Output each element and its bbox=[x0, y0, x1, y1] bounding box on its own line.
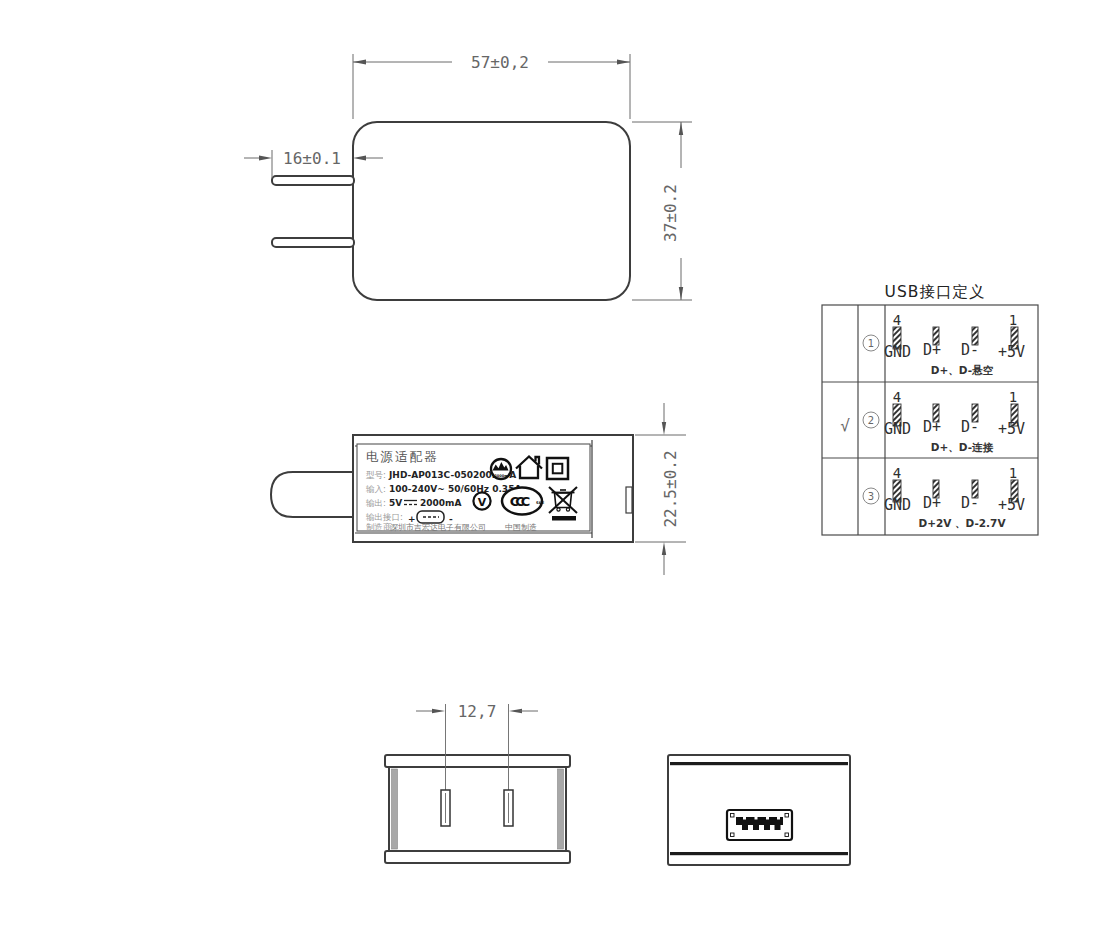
row3-pin1-number: 1 bbox=[1009, 465, 1017, 481]
label-output-key: 输出: bbox=[365, 498, 386, 508]
dim-side-height-value: 22.5±0.2 bbox=[661, 450, 680, 527]
usb-plug-icon bbox=[417, 511, 444, 523]
dim-height-value: 37±0.2 bbox=[661, 184, 680, 242]
usb-table-row-2: √ 2 4 1 GND D+ D- +5V D+、D-连接 bbox=[840, 389, 1025, 453]
row3-note: D+2V 、D-2.7V bbox=[918, 517, 1006, 529]
plug-face-left-wall bbox=[392, 769, 398, 849]
side-view: 电源适配器 型号: JHD-AP013C-050200BB-A 输入: 100-… bbox=[271, 403, 686, 575]
dimension-pin-spacing: 12,7 bbox=[416, 702, 538, 721]
rating-label: 电源适配器 型号: JHD-AP013C-050200BB-A 输入: 100-… bbox=[357, 444, 590, 532]
plug-face-top-band bbox=[385, 755, 570, 767]
row2-label-5v: +5V bbox=[998, 420, 1025, 438]
row2-label-dminus: D- bbox=[961, 418, 979, 436]
plug-prong-lower bbox=[272, 238, 354, 247]
row3-number: 3 bbox=[868, 491, 874, 502]
usb-table-row-1: 1 4 1 GND D+ D- +5V D+、D-悬空 bbox=[863, 312, 1025, 376]
usb-corner-notch bbox=[731, 814, 735, 818]
usb-contact-tab bbox=[775, 825, 781, 830]
plug-face-view: 12,7 bbox=[385, 702, 570, 863]
row2-note: D+、D-连接 bbox=[931, 441, 994, 453]
ccc-mark-icon: CCC S&E bbox=[502, 488, 545, 515]
row2-pin4-number: 4 bbox=[893, 389, 901, 405]
row3-pin4-number: 4 bbox=[893, 465, 901, 481]
v-efficiency-letter: V bbox=[478, 496, 487, 509]
usb-contact-tab bbox=[764, 825, 770, 830]
row2-check: √ bbox=[840, 416, 850, 435]
label-title: 电源适配器 bbox=[366, 449, 439, 464]
dimension-top-height: 37±0.2 bbox=[632, 122, 692, 300]
top-view: 57±0,2 16±0.1 37±0.2 bbox=[244, 53, 692, 300]
plug-face-body bbox=[389, 767, 566, 851]
v-efficiency-icon: V bbox=[473, 492, 490, 509]
row3-label-dplus: D+ bbox=[923, 494, 941, 512]
row1-label-gnd: GND bbox=[884, 343, 911, 361]
dim-prong-value: 16±0.1 bbox=[283, 149, 341, 168]
dimension-top-width: 57±0,2 bbox=[353, 53, 630, 119]
usb-table-title: USB接口定义 bbox=[885, 283, 986, 301]
dim-pin-spacing-value: 12,7 bbox=[458, 702, 497, 721]
label-port-key: 输出接口: bbox=[365, 512, 403, 522]
row1-label-5v: +5V bbox=[998, 343, 1025, 361]
usb-table-row-3: 3 4 1 GND D+ D- +5V D+2V 、D-2.7V bbox=[863, 465, 1025, 529]
row2-pin1-number: 1 bbox=[1009, 389, 1017, 405]
usb-corner-notch bbox=[731, 833, 735, 837]
label-input-key: 输入: bbox=[365, 484, 386, 494]
row2-label-dplus: D+ bbox=[923, 418, 941, 436]
usb-corner-notch bbox=[785, 814, 789, 818]
ccc-mark-small-text: S&E bbox=[536, 501, 545, 505]
usb-contact-tab bbox=[753, 825, 759, 830]
technical-drawing-page: 57±0,2 16±0.1 37±0.2 bbox=[0, 0, 1100, 925]
dimension-side-height: 22.5±0.2 bbox=[635, 403, 686, 575]
label-mfr-value: 深圳市吉宏达电子有限公司 bbox=[390, 523, 486, 532]
altitude-2000m-icon: 2000m bbox=[491, 459, 511, 479]
label-output-voltage: 5V bbox=[389, 498, 402, 508]
row1-label-dminus: D- bbox=[961, 341, 979, 359]
plug-face-right-wall bbox=[558, 769, 564, 849]
row1-number: 1 bbox=[868, 338, 874, 349]
label-output-current: 2000mA bbox=[420, 498, 461, 508]
plug-prong-upper bbox=[272, 176, 354, 185]
usb-receptacle bbox=[727, 810, 792, 840]
adapter-body-top-view bbox=[353, 122, 630, 300]
usb-face-bottom-line bbox=[670, 852, 848, 855]
usb-face-top-line bbox=[670, 762, 848, 765]
drawing-canvas: 57±0,2 16±0.1 37±0.2 bbox=[0, 0, 1100, 925]
label-made-in: 中国制造 bbox=[505, 523, 537, 532]
side-plug-prong bbox=[271, 472, 355, 517]
row1-pin4-number: 4 bbox=[893, 312, 901, 328]
usb-corner-notch bbox=[785, 833, 789, 837]
row1-pin1-number: 1 bbox=[1009, 312, 1017, 328]
row2-label-gnd: GND bbox=[884, 420, 911, 438]
usb-face-view bbox=[668, 755, 850, 865]
row3-label-5v: +5V bbox=[998, 496, 1025, 514]
usb-contact-tab bbox=[742, 825, 748, 830]
usb-pinout-table: USB接口定义 1 4 1 GND D+ D- +5V D+、D-悬空 √ bbox=[822, 283, 1038, 535]
row1-note: D+、D-悬空 bbox=[931, 364, 994, 376]
row3-label-gnd: GND bbox=[884, 496, 911, 514]
label-input-value: 100-240V~ 50/60Hz 0.35A bbox=[389, 484, 521, 494]
row1-label-dplus: D+ bbox=[923, 341, 941, 359]
row3-label-dminus: D- bbox=[961, 494, 979, 512]
plug-face-bottom-band bbox=[385, 851, 570, 863]
label-model-key: 型号: bbox=[366, 470, 386, 480]
dim-width-value: 57±0,2 bbox=[471, 53, 529, 72]
altitude-caption: 2000m bbox=[494, 474, 508, 478]
row2-number: 2 bbox=[868, 415, 874, 426]
